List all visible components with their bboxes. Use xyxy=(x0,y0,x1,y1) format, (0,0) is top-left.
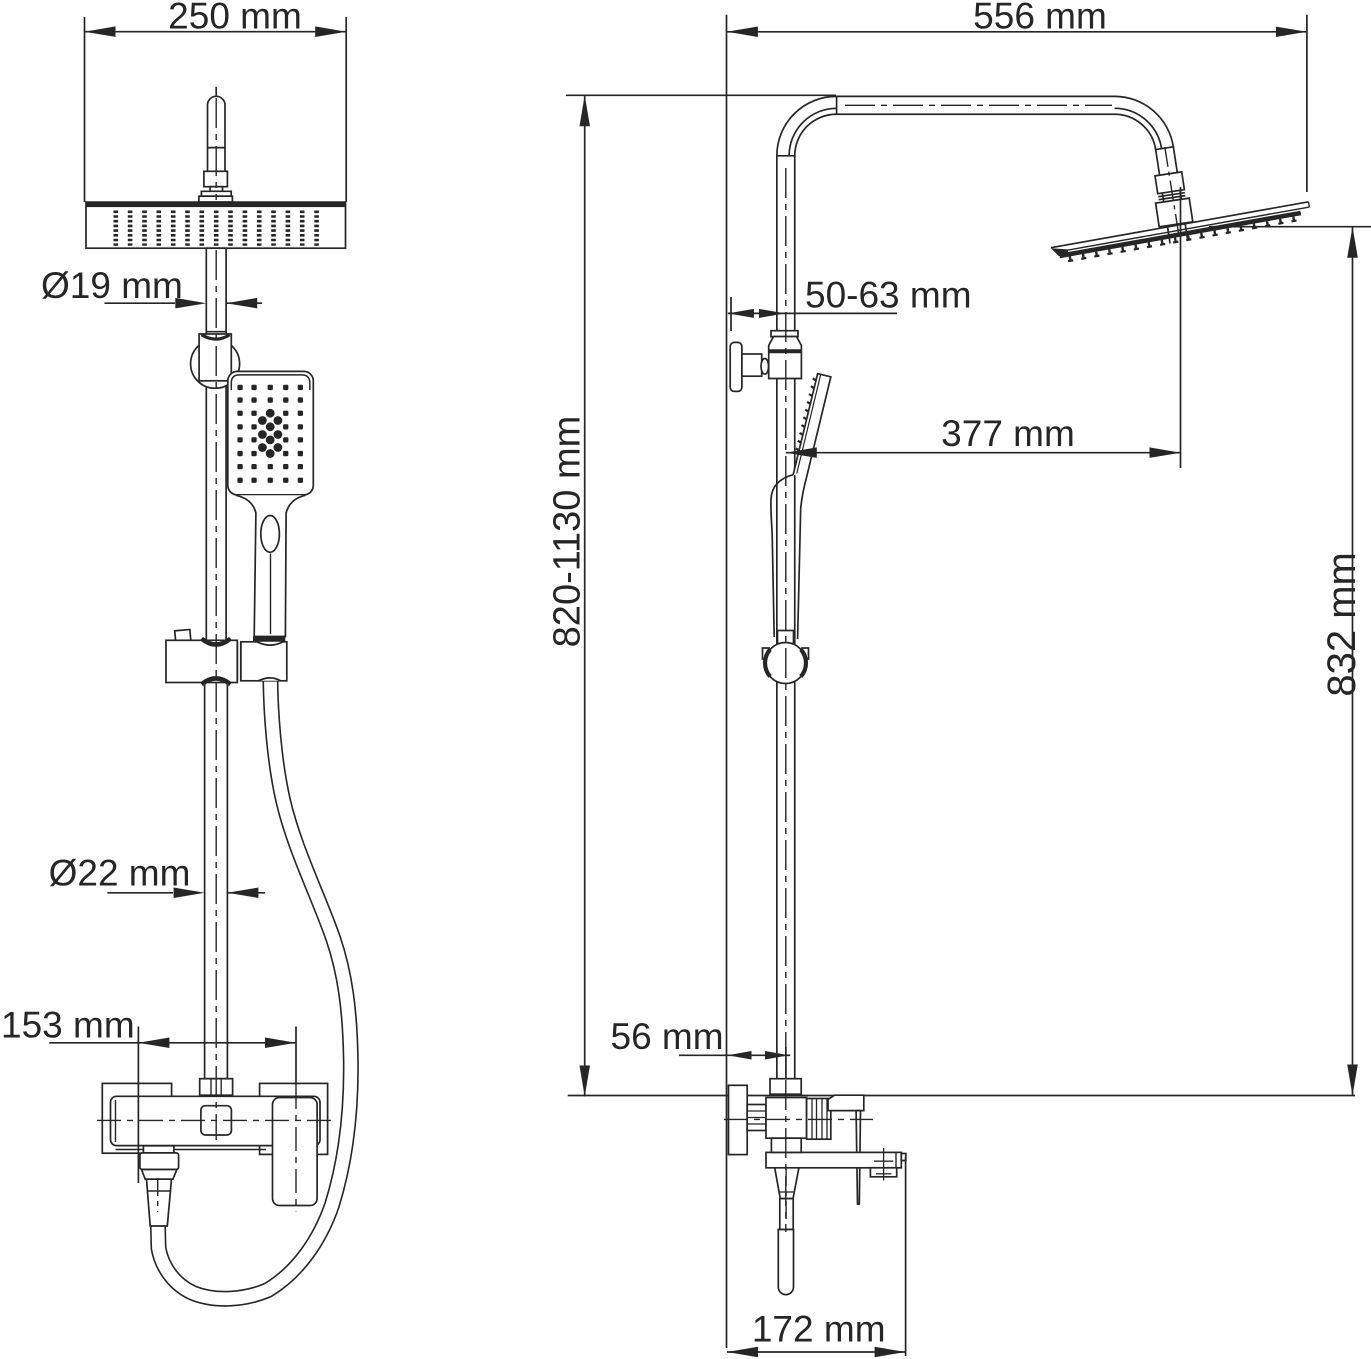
svg-text:556 mm: 556 mm xyxy=(973,0,1107,36)
svg-text:172 mm: 172 mm xyxy=(752,1309,886,1350)
svg-text:56 mm: 56 mm xyxy=(611,1016,724,1057)
svg-text:Ø22 mm: Ø22 mm xyxy=(49,853,191,894)
svg-text:Ø19 mm: Ø19 mm xyxy=(41,265,183,306)
svg-text:820-1130 mm: 820-1130 mm xyxy=(547,416,589,648)
svg-text:153 mm: 153 mm xyxy=(1,1005,135,1046)
svg-text:832 mm: 832 mm xyxy=(1320,552,1364,697)
svg-text:250 mm: 250 mm xyxy=(168,0,302,37)
svg-text:50-63 mm: 50-63 mm xyxy=(805,275,972,316)
svg-text:377 mm: 377 mm xyxy=(941,413,1075,454)
